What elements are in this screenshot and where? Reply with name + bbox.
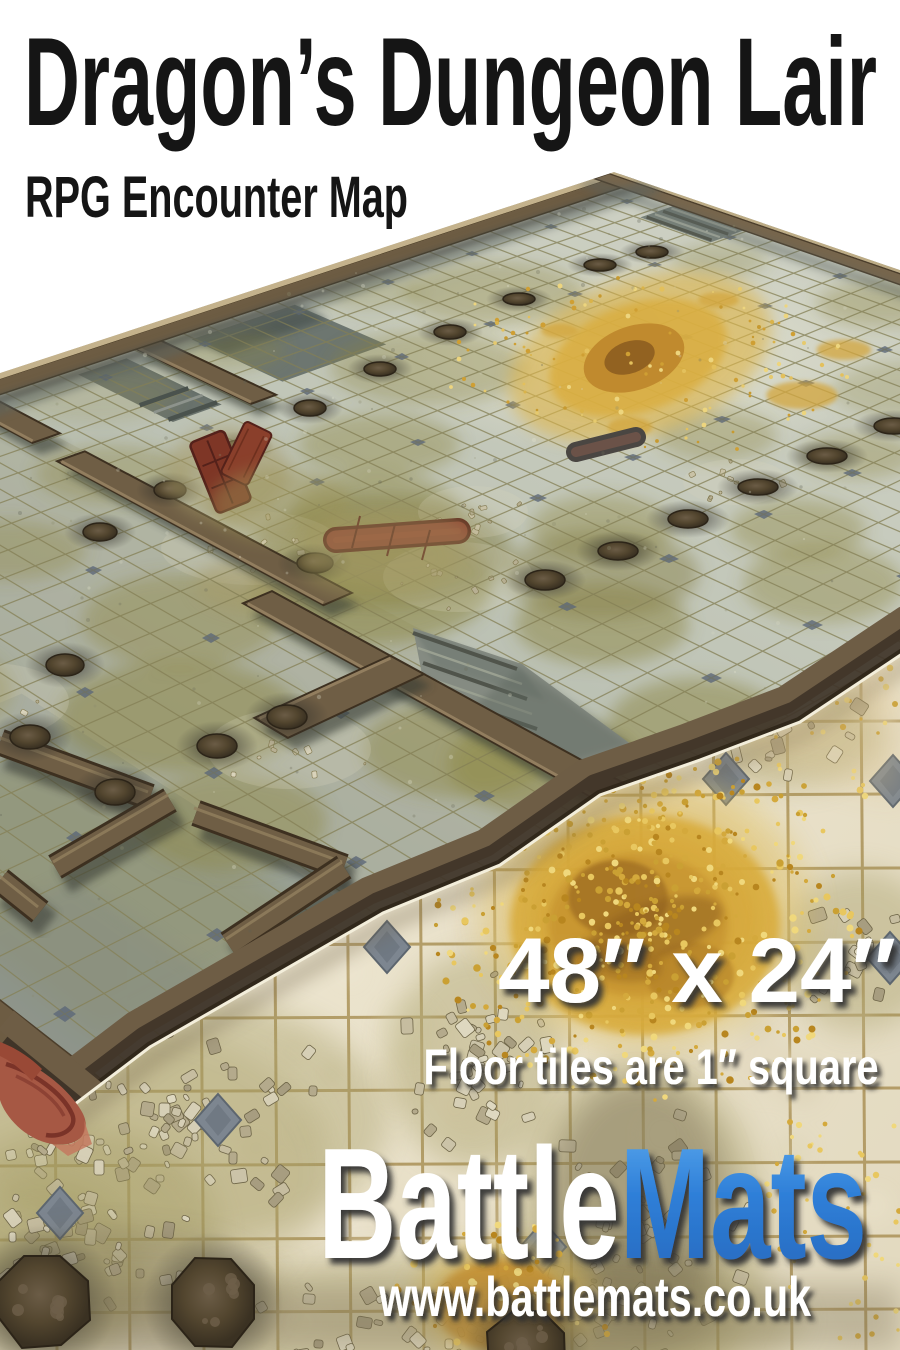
svg-text:www.battlemats.co.uk: www.battlemats.co.uk [378, 1265, 811, 1328]
svg-text:Dragon’s Dungeon Lair: Dragon’s Dungeon Lair [24, 13, 877, 152]
svg-text:48″ x 24″: 48″ x 24″ [498, 920, 896, 1022]
svg-text:RPG Encounter Map: RPG Encounter Map [25, 165, 408, 230]
svg-text:Floor tiles are 1″ square: Floor tiles are 1″ square [424, 1039, 879, 1095]
